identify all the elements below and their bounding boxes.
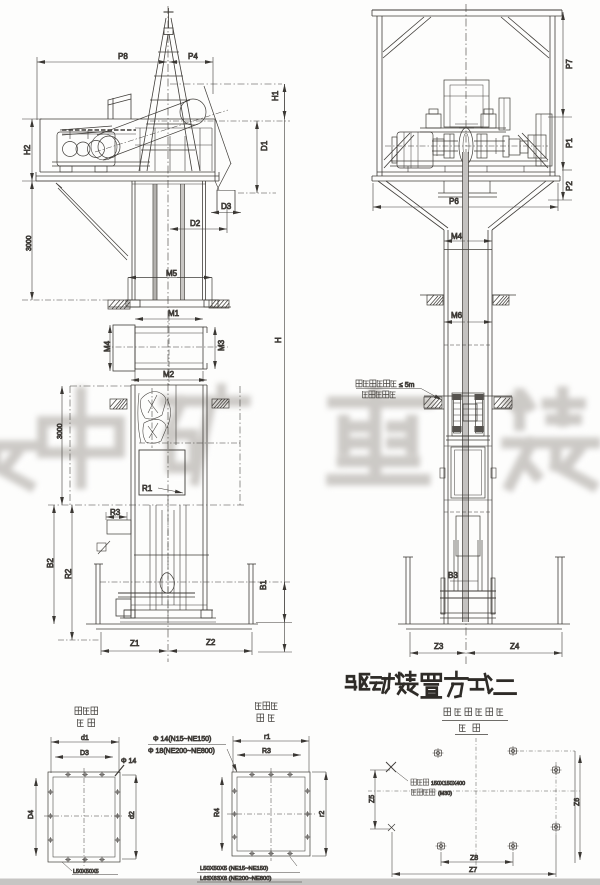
- svg-text:D3: D3: [80, 750, 89, 757]
- svg-text:M4: M4: [103, 340, 112, 352]
- svg-text:Φ 14: Φ 14: [121, 758, 136, 765]
- svg-text:R4: R4: [214, 808, 221, 817]
- svg-text:Z6: Z6: [574, 798, 581, 806]
- svg-text:150X150X400: 150X150X400: [431, 781, 465, 787]
- svg-text:M5: M5: [166, 269, 178, 278]
- svg-text:r2: r2: [319, 811, 326, 817]
- svg-text:B2: B2: [46, 558, 55, 568]
- svg-text:B1: B1: [259, 580, 268, 590]
- svg-text:Z8: Z8: [470, 855, 478, 862]
- svg-text:H1: H1: [271, 90, 280, 101]
- svg-text:M1: M1: [168, 309, 180, 318]
- svg-text:3000: 3000: [26, 235, 33, 251]
- svg-text:M6: M6: [451, 311, 463, 320]
- svg-text:D4: D4: [28, 810, 35, 819]
- svg-text:R2: R2: [64, 568, 73, 579]
- svg-text:H2: H2: [23, 144, 32, 155]
- svg-text:P2: P2: [565, 181, 574, 191]
- svg-text:L50X50X5 (NE15~NE150): L50X50X5 (NE15~NE150): [200, 866, 268, 872]
- svg-text:P1: P1: [565, 138, 574, 148]
- svg-text:R1: R1: [142, 484, 153, 493]
- svg-text:(M30): (M30): [438, 791, 452, 797]
- svg-text:D3: D3: [221, 202, 232, 211]
- svg-text:≤ 5m: ≤ 5m: [399, 382, 415, 389]
- svg-text:H: H: [274, 337, 283, 343]
- svg-text:L50X50X5: L50X50X5: [73, 869, 99, 875]
- svg-text:r1: r1: [264, 734, 270, 741]
- svg-text:Z7: Z7: [469, 867, 477, 874]
- svg-text:M3: M3: [217, 339, 226, 351]
- svg-text:Z5: Z5: [369, 795, 376, 803]
- svg-text:P6: P6: [449, 197, 459, 206]
- svg-text:P7: P7: [565, 59, 574, 69]
- svg-text:R3: R3: [262, 748, 271, 755]
- svg-text:3000: 3000: [57, 423, 64, 439]
- svg-text:D1: D1: [260, 140, 269, 151]
- svg-text:d2: d2: [129, 811, 136, 819]
- svg-text:Z4: Z4: [510, 642, 520, 651]
- svg-text:R3: R3: [110, 508, 121, 517]
- svg-text:D2: D2: [190, 219, 201, 228]
- svg-text:M4: M4: [451, 232, 463, 241]
- svg-text:L63X63X6 (NE200~NE800): L63X63X6 (NE200~NE800): [200, 876, 271, 882]
- svg-text:Z3: Z3: [434, 642, 444, 651]
- svg-text:M2: M2: [163, 370, 175, 379]
- svg-text:Z2: Z2: [206, 638, 216, 647]
- svg-text:P8: P8: [118, 52, 128, 61]
- svg-text:B3: B3: [448, 571, 458, 580]
- svg-text:P4: P4: [188, 52, 198, 61]
- svg-text:Φ 14(N15~NE150): Φ 14(N15~NE150): [153, 736, 211, 743]
- svg-text:d1: d1: [81, 735, 89, 742]
- svg-text:Z1: Z1: [130, 639, 140, 648]
- svg-text:Φ 18(NE200~NE800): Φ 18(NE200~NE800): [148, 748, 215, 755]
